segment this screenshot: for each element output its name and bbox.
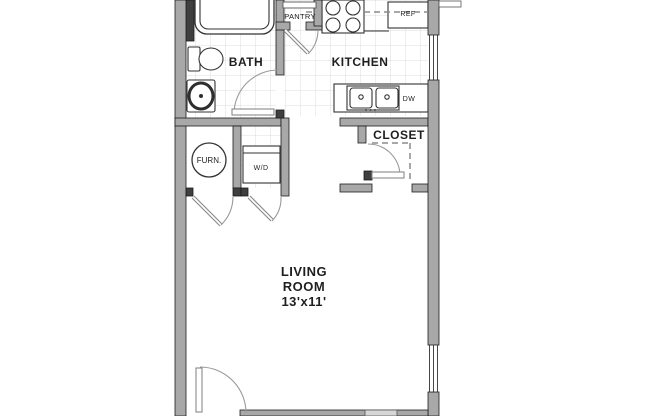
sink-drain-icon [385,95,389,99]
closet-divider-post [233,188,241,196]
entry-door-panel [196,368,202,412]
pantry-south-wall-stub [276,22,290,30]
washer-dryer-label: W/D [254,165,269,172]
closet-south-wall-left [340,184,372,192]
pantry-shelf-edge [283,2,316,8]
stove-burner-icon [326,18,340,32]
floor-plan-canvas: BATH KITCHEN PANTRY REF DW CLOSET FURN. … [0,0,652,416]
neighbor-wall-stub [439,1,461,7]
toilet-tank-icon [188,47,200,71]
bath-sink-drain-icon [199,94,203,98]
tub-surround-wall [186,0,194,41]
wd-closet-east-wall [281,118,289,196]
closet-label: CLOSET [373,128,425,142]
right-exterior-wall-top [428,0,439,35]
bath-door-post [276,110,284,118]
bath-label: BATH [229,55,263,69]
floor-plan-page: BATH KITCHEN PANTRY REF DW CLOSET FURN. … [0,0,652,416]
living-room-dimensions: 13'x11' [281,294,326,309]
refrigerator-label: REF [400,11,415,18]
bathtub-inner-icon [200,0,269,29]
bath-door-panel [232,109,274,115]
closet-door-swing-arc [368,144,400,176]
left-exterior-wall [175,0,186,416]
faucet-dot-icon [369,109,371,111]
furnace-label: FURN. [197,156,221,165]
furnace-door-post [186,188,193,196]
right-exterior-wall-mid [428,80,439,345]
bath-south-wall [175,118,281,126]
closet-south-wall-right [412,184,428,192]
sink-drain-icon [359,95,363,99]
closet-door-panel [372,172,404,178]
faucet-dot-icon [374,109,376,111]
kitchen-label: KITCHEN [332,55,389,69]
toilet-bowl-icon [199,48,223,70]
living-room-label-line2: ROOM [283,279,325,294]
wd-door-swing-arc [272,197,281,221]
stove-burner-icon [346,1,360,15]
closet-west-wall [358,126,366,143]
bottom-wall-window-icon [365,410,397,416]
pantry-label: PANTRY [284,12,316,21]
wd-door-panel-inner [249,197,272,220]
living-room-label-line1: LIVING [281,264,327,279]
wd-door-post [241,188,248,196]
dishwasher-label: DW [403,96,415,103]
right-exterior-wall-bottom [428,392,439,416]
bath-east-wall [276,0,284,75]
closet-door-post [364,171,372,180]
furnace-door-panel-inner [193,197,221,225]
furnace-wd-divider-wall [233,126,241,188]
kitchen-south-wall [340,118,428,126]
stove-burner-icon [326,1,340,15]
faucet-dot-icon [365,109,367,111]
stove-burner-icon [346,18,360,32]
bottom-exterior-wall [240,410,428,416]
furnace-door-swing-arc [221,197,233,225]
entry-door-swing-arc [200,367,246,413]
